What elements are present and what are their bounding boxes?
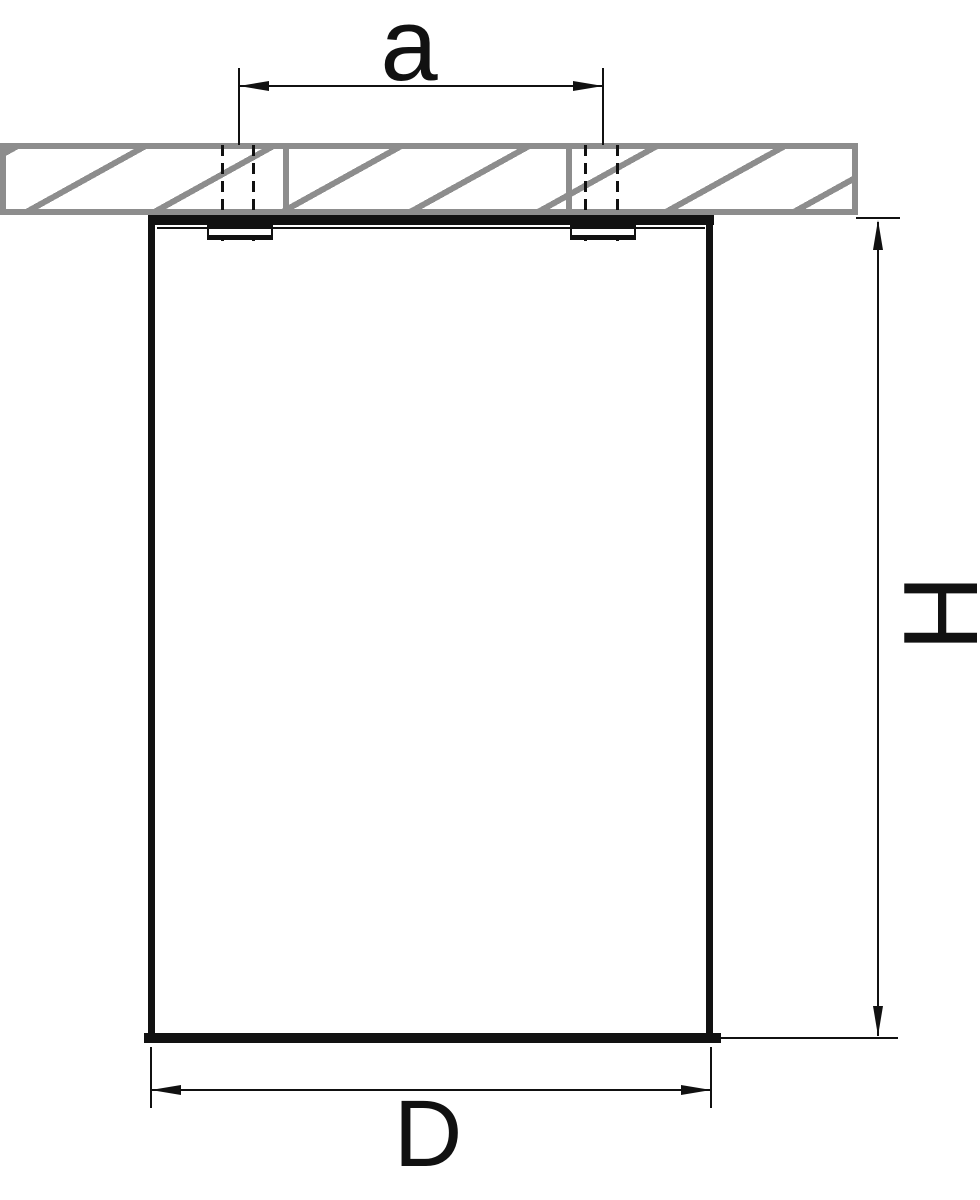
dim-d-arrowhead-right — [681, 1085, 711, 1095]
dim-a-arrowhead-right — [573, 81, 603, 91]
dim-h-extension-line-bottom — [717, 1037, 898, 1039]
dim-h-arrowhead-top — [873, 220, 883, 250]
technical-drawing: a H D — [0, 0, 980, 1200]
dim-d-extension-line-right — [710, 1047, 712, 1108]
dim-d-label: D — [372, 1087, 484, 1182]
mounting-clip-left — [207, 225, 273, 240]
dim-h-label: H — [885, 513, 980, 713]
ceiling-panel-seam-right — [566, 149, 572, 209]
dim-a-extension-line-left — [238, 68, 240, 145]
fixture-right-wall — [706, 215, 713, 1043]
dim-h-arrowhead-bottom — [873, 1006, 883, 1036]
dim-d-extension-line-left — [150, 1047, 152, 1108]
fixture-left-wall — [148, 215, 155, 1043]
mounting-clip-right — [570, 225, 636, 240]
fixture-top-plate — [148, 215, 714, 225]
dim-a-label: a — [359, 0, 459, 96]
fixture-bottom-plate — [144, 1033, 721, 1043]
dim-h-extension-line-top — [856, 217, 900, 219]
ceiling-panel-seam-left — [283, 149, 289, 209]
ceiling-panel-hatched — [0, 143, 858, 215]
dim-d-arrowhead-left — [151, 1085, 181, 1095]
dim-h-dimension-line — [877, 222, 879, 1036]
dim-a-arrowhead-left — [239, 81, 269, 91]
dim-a-extension-line-right — [602, 68, 604, 145]
